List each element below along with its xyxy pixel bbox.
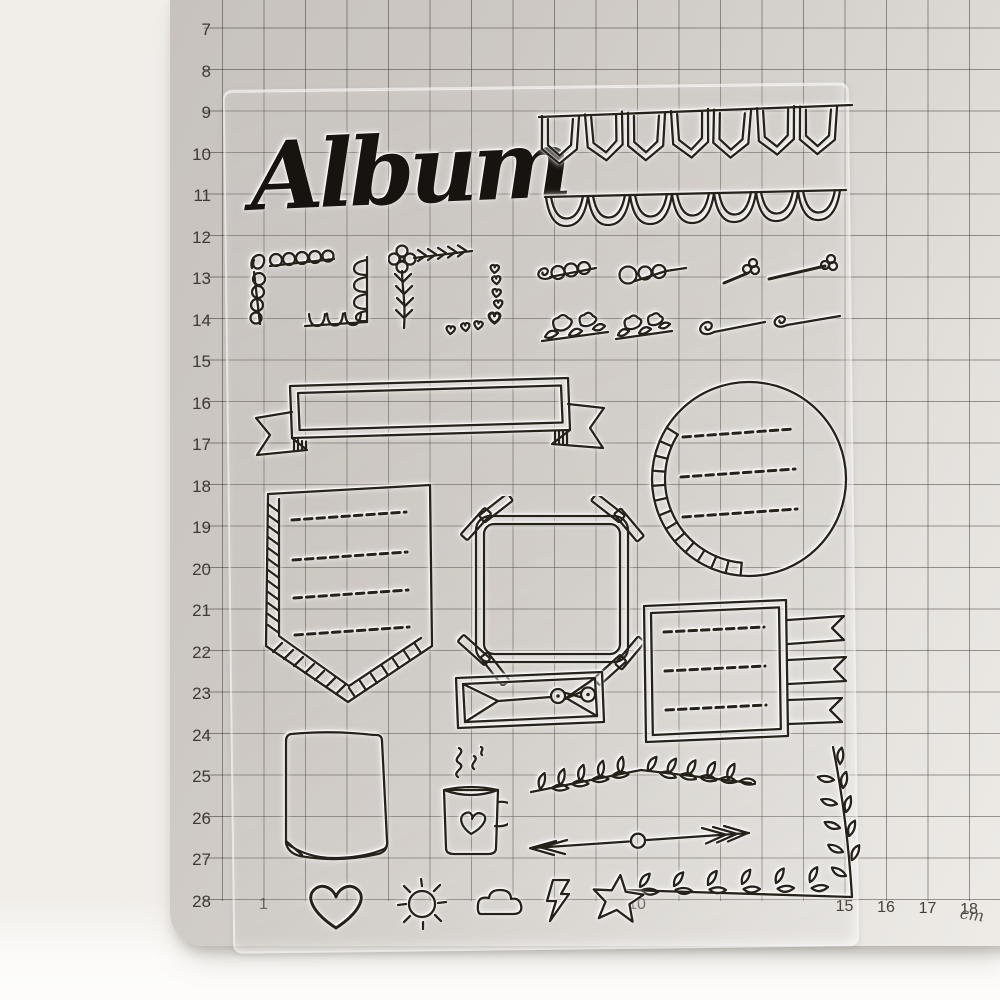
- pennant-frame-icon: [256, 478, 444, 706]
- ruler-number: 16: [871, 899, 901, 917]
- scallop-border-stamp: [542, 186, 850, 243]
- curled-paper-note-stamp: [278, 725, 396, 874]
- bunting-banner-icon: [536, 100, 856, 178]
- ruler-number: 19: [192, 518, 211, 538]
- scallop-corner-icon: [301, 254, 375, 332]
- lightning-icon-stamp: [538, 876, 576, 929]
- heart-corner-icon: [434, 262, 508, 340]
- star-icon: [586, 872, 650, 924]
- ruler-number: 14: [192, 311, 211, 331]
- bunting-banner-stamp: [536, 100, 856, 183]
- envelope-stamp: [448, 666, 612, 743]
- flower-dash-icon: [766, 252, 840, 288]
- pennant-shield-frame-stamp: [256, 478, 444, 711]
- flower-stem-icon: [613, 309, 675, 351]
- ruler-number: 18: [192, 477, 211, 497]
- cm-unit-label: cm: [959, 903, 986, 925]
- ruler-number: 25: [192, 767, 211, 787]
- paper-note-icon: [278, 725, 396, 869]
- circle-journal-frame-stamp: [641, 371, 857, 596]
- ruler-number: 27: [192, 850, 211, 870]
- flag-list-frame-stamp: [636, 594, 854, 753]
- coffee-mug-stamp: [434, 744, 508, 865]
- tape-corners-frame-stamp: [450, 496, 654, 691]
- ruler-number: 23: [192, 684, 211, 704]
- ruler-number: 22: [192, 643, 211, 663]
- laurel-corner-branch-stamp: [616, 740, 868, 937]
- ruler-number: 7: [202, 20, 211, 40]
- ribbon-banner-icon: [250, 371, 612, 475]
- swirl-line-icon: [690, 312, 768, 348]
- swirl-line-doodle-2-stamp: [767, 308, 843, 349]
- sun-icon: [388, 876, 456, 930]
- flower-stem-icon: [539, 309, 611, 353]
- ruler-number: 16: [192, 394, 211, 414]
- ruler-number: 11: [193, 186, 211, 206]
- envelope-icon: [448, 666, 612, 738]
- circle-frame-icon: [641, 371, 857, 591]
- heart-icon-stamp: [301, 881, 371, 938]
- ruler-number: 17: [913, 900, 943, 918]
- mat-left-ruler: 7 8 9 10 11 12 13 14 15 16 17 18 19 20 2…: [170, 0, 216, 940]
- ruler-number: 17: [192, 435, 211, 455]
- flower-stem-doodle-1-stamp: [539, 309, 611, 358]
- cloud-icon: [468, 882, 528, 922]
- loop-swirl-icon: [614, 258, 688, 296]
- flower-dash-doodle-2-stamp: [766, 252, 840, 293]
- loop-swirl-doodle-1-stamp: [522, 256, 600, 299]
- ruler-number: 8: [202, 62, 211, 82]
- star-icon-stamp: [586, 872, 650, 929]
- scallop-corner-stamp: [301, 254, 375, 337]
- ruler-number: 9: [202, 103, 211, 123]
- loop-swirl-icon: [522, 256, 600, 294]
- product-photo-scene: 7 8 9 10 11 12 13 14 15 16 17 18 19 20 2…: [0, 0, 1000, 1000]
- heart-icon: [301, 881, 371, 933]
- ruler-number: 15: [192, 352, 211, 372]
- ruler-number: 21: [192, 601, 211, 621]
- ruler-number: 26: [192, 809, 211, 829]
- flower-stem-doodle-2-stamp: [613, 309, 675, 356]
- ruler-number: 20: [192, 560, 211, 580]
- cloud-icon-stamp: [468, 882, 528, 927]
- laurel-corner-icon: [616, 740, 868, 932]
- album-title-text: Album: [248, 117, 569, 225]
- scallop-border-icon: [542, 186, 850, 238]
- heart-corner-stamp: [434, 262, 508, 345]
- ruler-number: 13: [192, 269, 211, 289]
- loop-swirl-doodle-2-stamp: [614, 258, 688, 301]
- ribbon-banner-frame-stamp: [250, 371, 612, 480]
- lightning-icon: [538, 876, 576, 924]
- ruler-number: 24: [192, 726, 211, 746]
- ruler-number: 1: [249, 896, 279, 914]
- ruler-number: 12: [192, 228, 211, 248]
- coffee-mug-icon: [434, 744, 508, 860]
- flag-frame-icon: [636, 594, 854, 748]
- swirl-line-doodle-1-stamp: [690, 312, 768, 353]
- sun-icon-stamp: [388, 876, 456, 935]
- tape-frame-icon: [450, 496, 654, 686]
- album-script-text-stamp: Album: [250, 124, 567, 218]
- ruler-number: 28: [192, 892, 211, 912]
- ruler-number: 10: [192, 145, 211, 165]
- flower-dash-icon: [721, 256, 765, 290]
- flower-dash-doodle-1-stamp: [721, 256, 765, 295]
- swirl-line-icon: [767, 308, 843, 344]
